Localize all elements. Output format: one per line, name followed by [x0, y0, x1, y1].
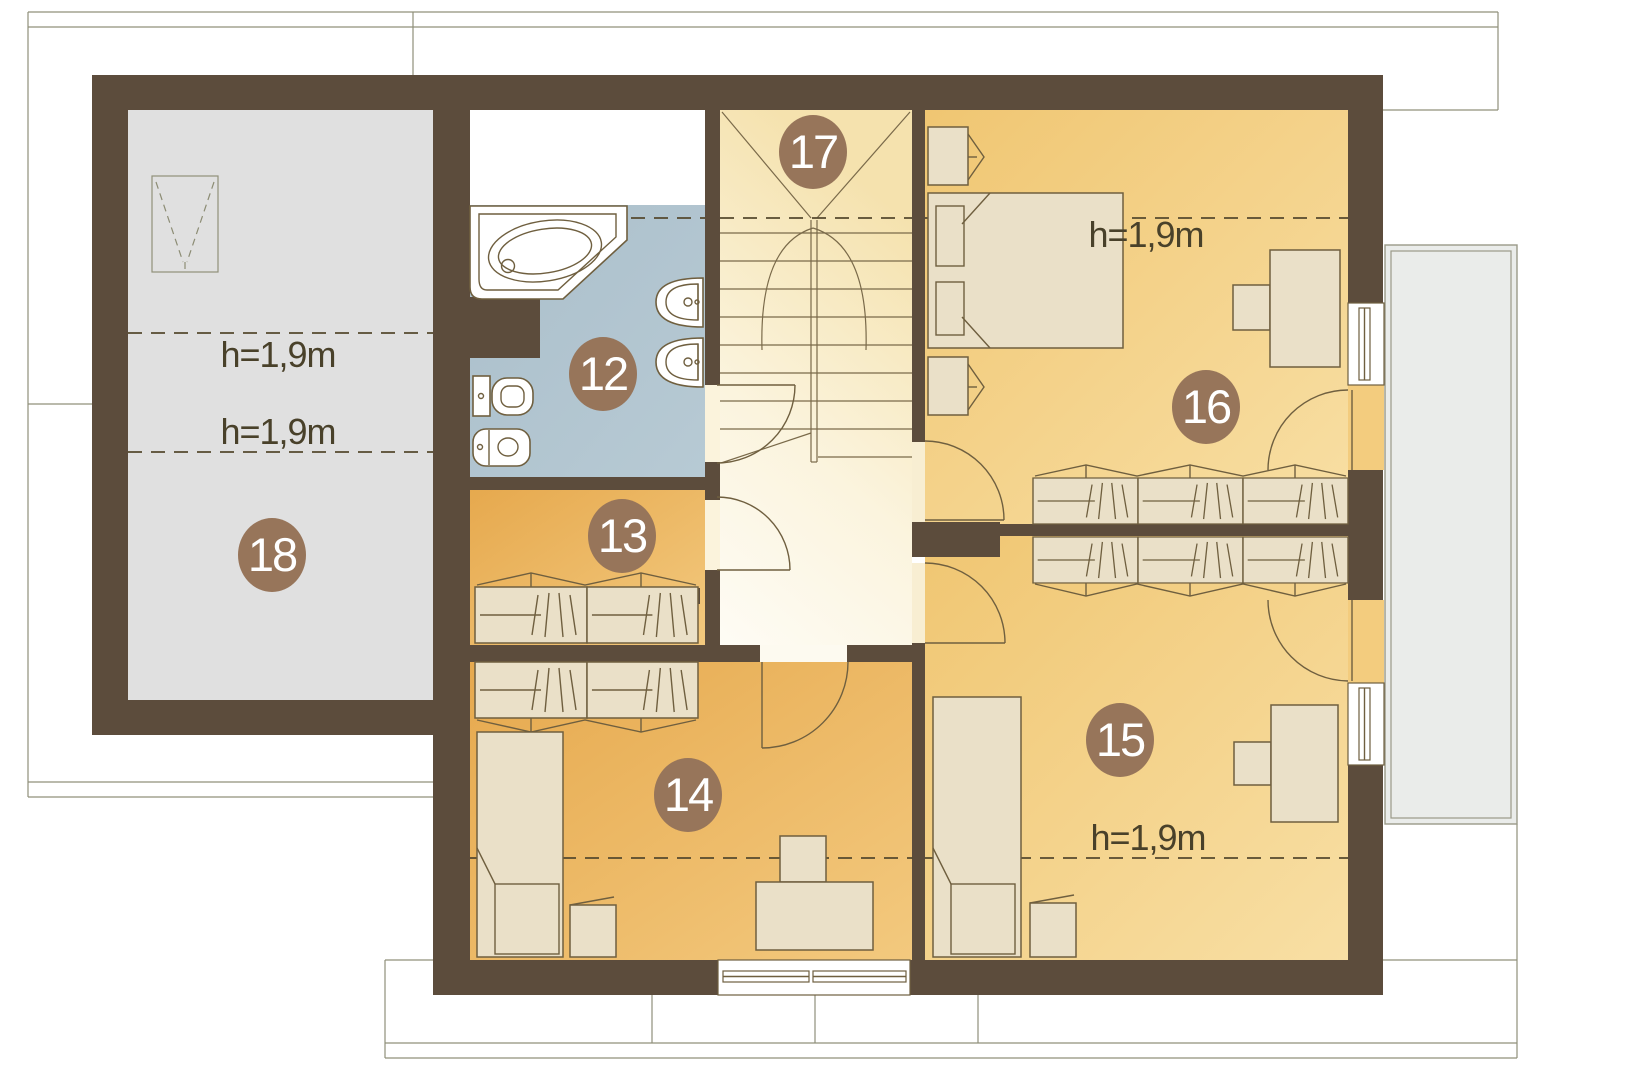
room-15-badge: 15	[1086, 703, 1154, 777]
room-18-floor	[128, 110, 433, 700]
svg-text:12: 12	[579, 347, 627, 400]
room-18-badge: 18	[238, 518, 306, 592]
svg-text:17: 17	[789, 125, 837, 178]
window-room15	[1348, 683, 1384, 765]
window-room16	[1348, 303, 1384, 385]
height-annotation: h=1,9m	[220, 411, 335, 452]
room-13-badge: 13	[588, 499, 656, 573]
side-table-icon	[570, 897, 616, 957]
toilet-icon	[473, 376, 533, 416]
svg-text:13: 13	[598, 509, 647, 562]
room-12-badge: 12	[569, 337, 637, 411]
bidet-icon	[473, 429, 530, 466]
bathroom-masonry-block	[470, 297, 540, 358]
svg-text:18: 18	[248, 528, 297, 581]
side-table-icon	[1030, 895, 1076, 957]
room-16-badge: 16	[1172, 370, 1240, 444]
single-bed-icon	[477, 732, 563, 957]
hall-stairs-floor	[720, 110, 912, 645]
svg-text:14: 14	[664, 768, 713, 821]
room-17-badge: 17	[779, 115, 847, 189]
single-bed-icon	[933, 697, 1021, 957]
window-room14	[718, 960, 910, 995]
svg-text:16: 16	[1182, 380, 1231, 433]
floor-plan-canvas: 12 13 14 15 16 17 18 h=1,9m h=1,9m	[0, 0, 1648, 1073]
floor-plan-drawing: 12 13 14 15 16 17 18 h=1,9m h=1,9m	[0, 0, 1648, 1073]
height-annotation: h=1,9m	[1088, 214, 1203, 255]
height-annotation: h=1,9m	[1090, 817, 1205, 858]
svg-text:15: 15	[1096, 713, 1145, 766]
room-14-badge: 14	[654, 758, 722, 832]
height-annotation: h=1,9m	[220, 334, 335, 375]
balcony	[1385, 245, 1517, 824]
